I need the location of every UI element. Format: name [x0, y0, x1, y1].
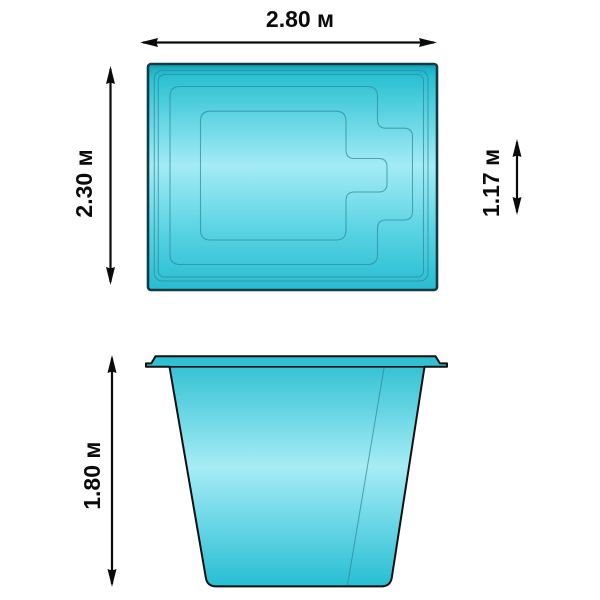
svg-text:1.80 м: 1.80 м — [79, 442, 105, 510]
svg-text:2.30 м: 2.30 м — [71, 149, 97, 217]
svg-text:2.80 м: 2.80 м — [266, 6, 334, 32]
svg-text:1.17 м: 1.17 м — [478, 149, 504, 217]
